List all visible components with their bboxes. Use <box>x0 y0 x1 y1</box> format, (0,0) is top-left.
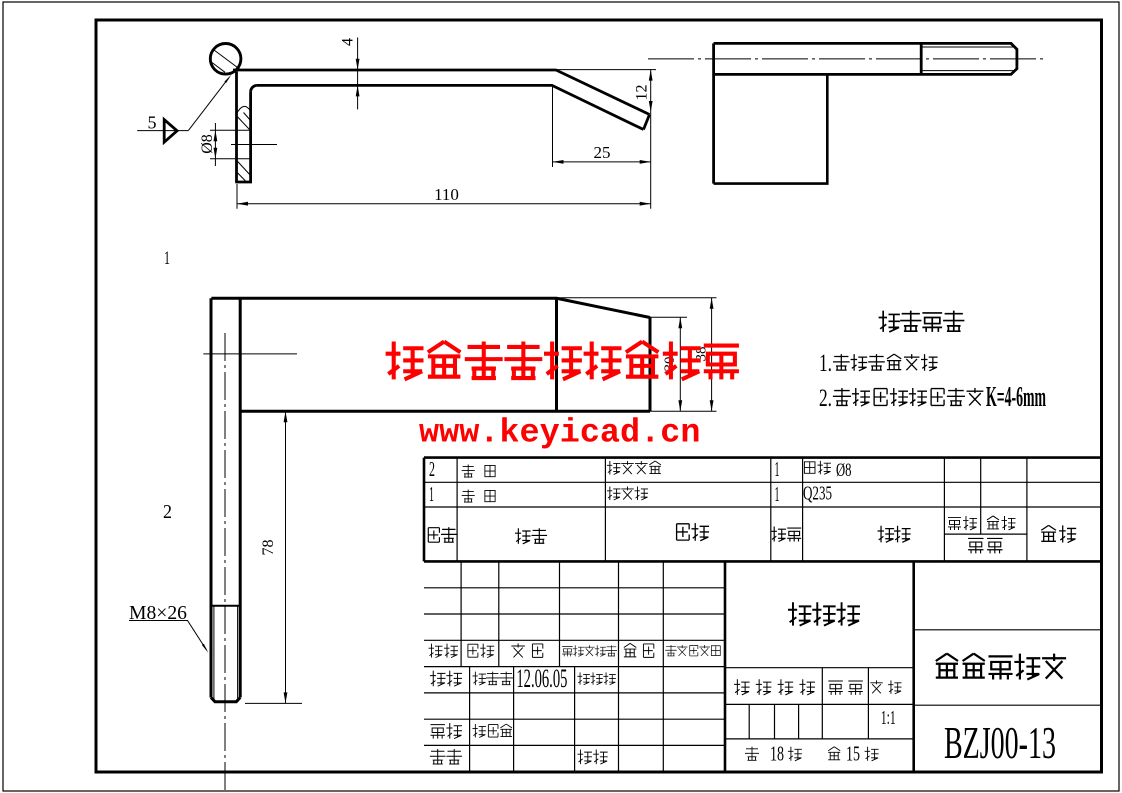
svg-text:2: 2 <box>163 501 172 523</box>
svg-text:12.06.05: 12.06.05 <box>516 664 567 693</box>
svg-text:1: 1 <box>775 482 780 506</box>
svg-text:K=4-6mm: K=4-6mm <box>986 382 1046 413</box>
svg-text:1.: 1. <box>819 350 832 377</box>
svg-text:4: 4 <box>340 38 357 46</box>
svg-text:Ø8: Ø8 <box>199 134 216 154</box>
svg-text:1: 1 <box>429 482 434 506</box>
svg-text:78: 78 <box>260 540 277 556</box>
svg-text:2.: 2. <box>819 385 832 412</box>
svg-text:1: 1 <box>164 248 170 269</box>
svg-text:5: 5 <box>148 113 157 133</box>
svg-text:25: 25 <box>594 143 611 162</box>
svg-text:www.keyicad.cn: www.keyicad.cn <box>419 415 700 453</box>
svg-text:Ø8: Ø8 <box>836 460 852 481</box>
svg-text:Q235: Q235 <box>803 483 832 505</box>
svg-text:1:1: 1:1 <box>881 708 896 729</box>
svg-text:BZJ00-13: BZJ00-13 <box>944 717 1056 768</box>
svg-text:12: 12 <box>634 85 651 101</box>
svg-text:15: 15 <box>846 742 860 766</box>
svg-text:1: 1 <box>775 457 780 481</box>
svg-text:2: 2 <box>429 457 435 481</box>
svg-text:18: 18 <box>770 742 784 766</box>
svg-text:110: 110 <box>434 185 459 204</box>
